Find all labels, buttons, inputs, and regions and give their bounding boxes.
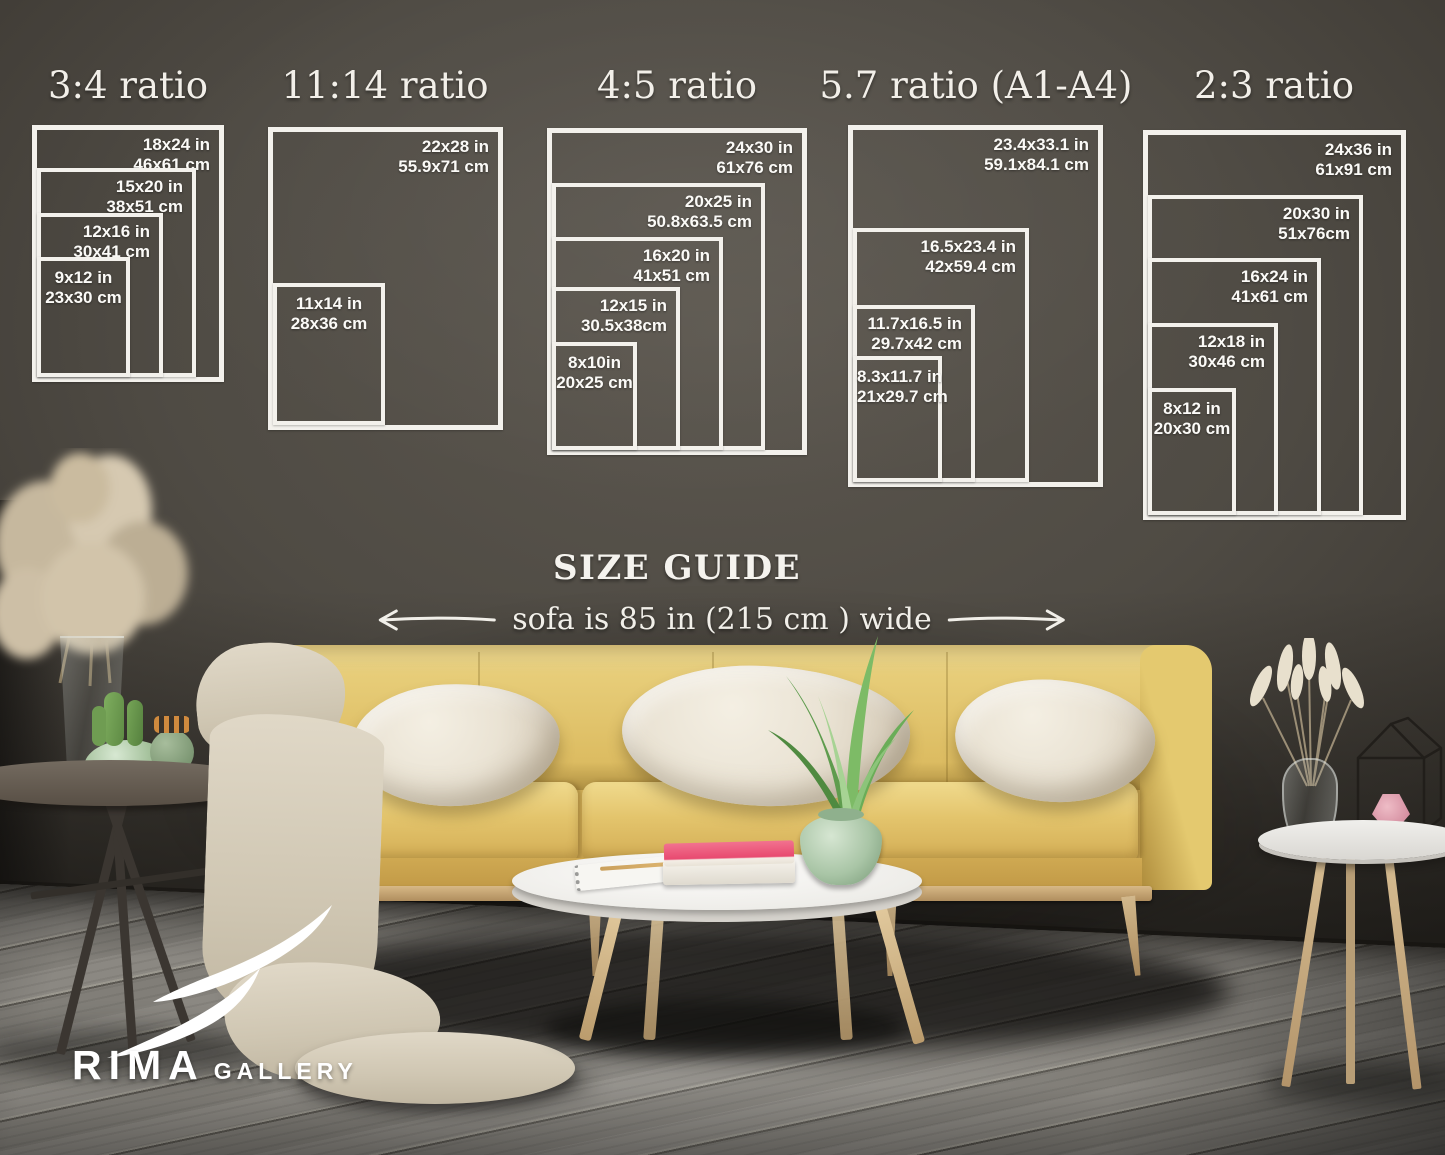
size-label: 11x14 in 28x36 cm bbox=[277, 294, 381, 334]
striped-decor bbox=[154, 716, 190, 733]
size-in: 11x14 in bbox=[277, 294, 381, 314]
size-in: 20x30 in bbox=[1278, 204, 1350, 224]
size-in: 8.3x11.7 in bbox=[857, 367, 938, 387]
ratio-title: 3:4 ratio bbox=[48, 64, 208, 107]
ratio-group-11-14: 22x28 in 55.9x71 cm 11x14 in 28x36 cm bbox=[268, 127, 503, 430]
size-in: 24x36 in bbox=[1315, 140, 1392, 160]
size-cm: 61x91 cm bbox=[1315, 160, 1392, 180]
ratio-title: 2:3 ratio bbox=[1194, 64, 1354, 107]
size-cm: 61x76 cm bbox=[716, 158, 793, 178]
size-in: 15x20 in bbox=[106, 177, 183, 197]
cactus bbox=[92, 706, 106, 746]
brand-suffix: GALLERY bbox=[214, 1058, 358, 1085]
size-frame: 8x12 in 20x30 cm bbox=[1148, 388, 1236, 515]
size-label: 16.5x23.4 in 42x59.4 cm bbox=[921, 237, 1016, 277]
size-label: 9x12 in 23x30 cm bbox=[41, 268, 126, 308]
size-in: 22x28 in bbox=[398, 137, 489, 157]
size-cm: 23x30 cm bbox=[41, 288, 126, 308]
side-table-right-leg bbox=[1346, 846, 1355, 1084]
size-frame: 11x14 in 28x36 cm bbox=[273, 283, 385, 425]
size-label: 23.4x33.1 in 59.1x84.1 cm bbox=[984, 135, 1089, 175]
ratio-group-5-7: 23.4x33.1 in 59.1x84.1 cm 16.5x23.4 in 4… bbox=[848, 125, 1103, 487]
size-in: 24x30 in bbox=[716, 138, 793, 158]
ratio-title: 4:5 ratio bbox=[597, 64, 757, 107]
size-in: 12x18 in bbox=[1188, 332, 1265, 352]
size-cm: 59.1x84.1 cm bbox=[984, 155, 1089, 175]
size-guide-heading: SIZE GUIDE bbox=[553, 548, 801, 588]
size-label: 8.3x11.7 in 21x29.7 cm bbox=[857, 367, 938, 407]
size-cm: 55.9x71 cm bbox=[398, 157, 489, 177]
size-label: 8x10in 20x25 cm bbox=[556, 353, 633, 393]
size-in: 16x24 in bbox=[1231, 267, 1308, 287]
size-in: 12x15 in bbox=[581, 296, 667, 316]
size-in: 18x24 in bbox=[133, 135, 210, 155]
size-label: 8x12 in 20x30 cm bbox=[1152, 399, 1232, 439]
size-cm: 20x30 cm bbox=[1152, 419, 1232, 439]
size-label: 20x25 in 50.8x63.5 cm bbox=[647, 192, 752, 232]
size-label: 15x20 in 38x51 cm bbox=[106, 177, 183, 217]
size-cm: 50.8x63.5 cm bbox=[647, 212, 752, 232]
size-label: 16x20 in 41x51 cm bbox=[633, 246, 710, 286]
ratio-title: 11:14 ratio bbox=[281, 64, 488, 107]
size-cm: 20x25 cm bbox=[556, 373, 633, 393]
size-in: 11.7x16.5 in bbox=[867, 314, 962, 334]
pink-book bbox=[664, 840, 795, 866]
size-frame: 8.3x11.7 in 21x29.7 cm bbox=[853, 356, 942, 482]
size-label: 11.7x16.5 in 29.7x42 cm bbox=[867, 314, 962, 354]
size-in: 23.4x33.1 in bbox=[984, 135, 1089, 155]
size-label: 24x30 in 61x76 cm bbox=[716, 138, 793, 178]
vase-rim bbox=[818, 808, 864, 821]
size-cm: 30x46 cm bbox=[1188, 352, 1265, 372]
size-in: 8x12 in bbox=[1152, 399, 1232, 419]
size-frame: 8x10in 20x25 cm bbox=[552, 342, 637, 450]
brand-name: RIMA bbox=[72, 1042, 205, 1089]
size-cm: 42x59.4 cm bbox=[921, 257, 1016, 277]
size-cm: 41x51 cm bbox=[633, 266, 710, 286]
size-in: 8x10in bbox=[556, 353, 633, 373]
ratio-group-4-5: 24x30 in 61x76 cm 20x25 in 50.8x63.5 cm … bbox=[547, 128, 807, 455]
ratio-title: 5.7 ratio (A1-A4) bbox=[820, 64, 1133, 107]
size-frame: 9x12 in 23x30 cm bbox=[37, 257, 130, 377]
size-label: 20x30 in 51x76cm bbox=[1278, 204, 1350, 244]
size-cm: 28x36 cm bbox=[277, 314, 381, 334]
size-in: 20x25 in bbox=[647, 192, 752, 212]
left-arrow-icon bbox=[374, 606, 496, 634]
size-label: 12x18 in 30x46 cm bbox=[1188, 332, 1265, 372]
cactus bbox=[127, 700, 143, 746]
right-arrow-icon bbox=[948, 606, 1070, 634]
size-in: 16x20 in bbox=[633, 246, 710, 266]
ratio-group-3-4: 18x24 in 46x61 cm 15x20 in 38x51 cm 12x1… bbox=[32, 125, 224, 382]
potted-plant-leaves bbox=[762, 618, 922, 833]
size-in: 12x16 in bbox=[73, 222, 150, 242]
size-label: 16x24 in 41x61 cm bbox=[1231, 267, 1308, 307]
size-in: 16.5x23.4 in bbox=[921, 237, 1016, 257]
size-guide-poster: 3:4 ratio 18x24 in 46x61 cm 15x20 in 38x… bbox=[0, 0, 1445, 1155]
ratio-group-2-3: 24x36 in 61x91 cm 20x30 in 51x76cm 16x24… bbox=[1143, 130, 1406, 520]
size-cm: 30.5x38cm bbox=[581, 316, 667, 336]
size-label: 12x15 in 30.5x38cm bbox=[581, 296, 667, 336]
size-in: 9x12 in bbox=[41, 268, 126, 288]
sofa-arm-right bbox=[1140, 645, 1212, 890]
size-cm: 41x61 cm bbox=[1231, 287, 1308, 307]
cactus bbox=[104, 692, 124, 746]
brand-logo: RIMAGALLERY bbox=[72, 1042, 358, 1089]
size-cm: 51x76cm bbox=[1278, 224, 1350, 244]
size-cm: 29.7x42 cm bbox=[867, 334, 962, 354]
size-label: 24x36 in 61x91 cm bbox=[1315, 140, 1392, 180]
size-label: 22x28 in 55.9x71 cm bbox=[398, 137, 489, 177]
size-cm: 21x29.7 cm bbox=[857, 387, 938, 407]
sofa-width-note: sofa is 85 in (215 cm ) wide bbox=[374, 602, 1069, 637]
